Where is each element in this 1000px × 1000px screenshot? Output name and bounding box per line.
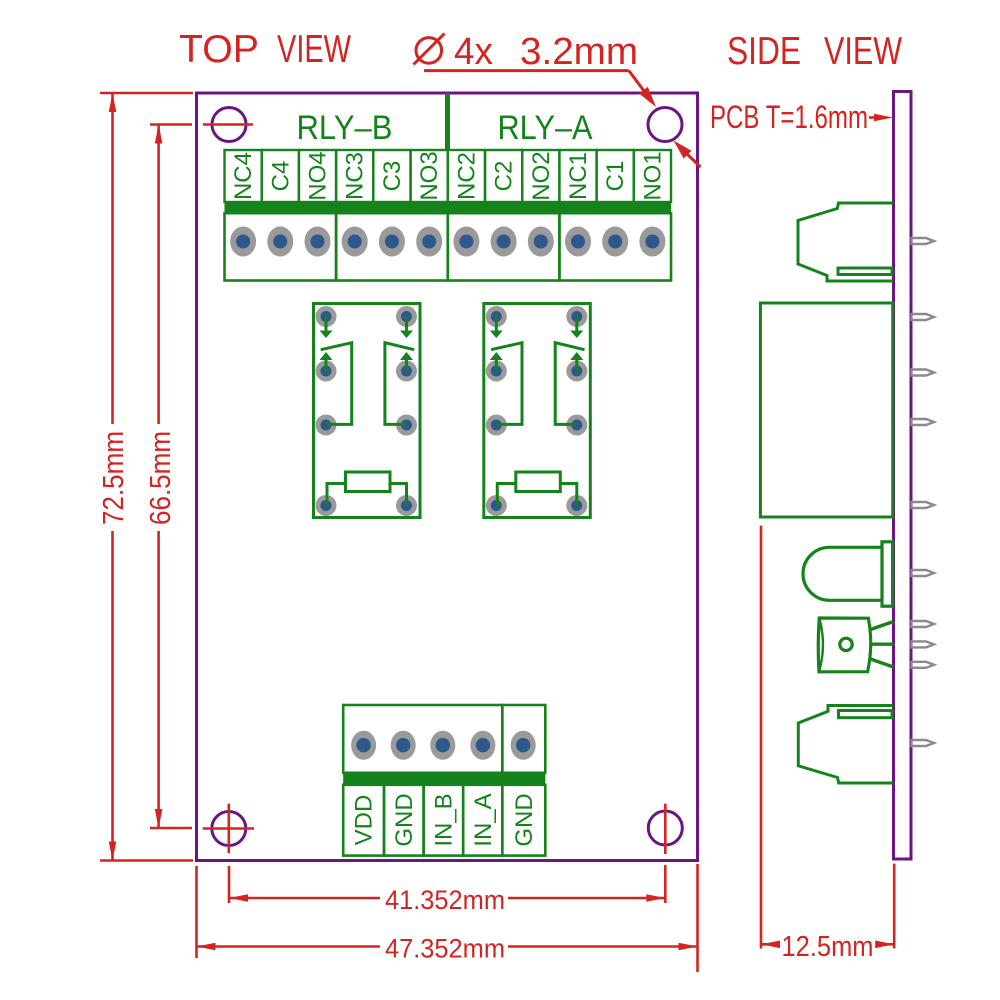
svg-text:4x: 4x (454, 31, 493, 73)
svg-text:C2: C2 (491, 161, 518, 192)
svg-text:SIDE: SIDE (727, 30, 801, 73)
svg-text:NO1: NO1 (639, 151, 666, 200)
svg-text:C1: C1 (602, 161, 629, 192)
svg-text:PCB T=1.6mm: PCB T=1.6mm (710, 99, 868, 135)
svg-text:GND: GND (391, 793, 418, 846)
svg-text:VDD: VDD (351, 795, 378, 846)
svg-text:NO2: NO2 (528, 151, 555, 200)
svg-text:3.2mm: 3.2mm (520, 31, 638, 73)
svg-text:C3: C3 (379, 161, 406, 192)
svg-text:IN_A: IN_A (470, 793, 497, 846)
svg-text:41.352mm: 41.352mm (385, 885, 505, 915)
svg-text:NO4: NO4 (305, 151, 332, 200)
svg-text:IN_B: IN_B (430, 793, 457, 846)
svg-text:NC1: NC1 (565, 152, 592, 200)
svg-text:VIEW: VIEW (277, 28, 351, 71)
svg-text:72.5mm: 72.5mm (98, 431, 130, 525)
svg-text:NO3: NO3 (416, 151, 443, 200)
svg-text:12.5mm: 12.5mm (782, 931, 874, 963)
svg-text:66.5mm: 66.5mm (145, 431, 177, 525)
svg-text:47.352mm: 47.352mm (385, 934, 505, 964)
svg-text:RLY–A: RLY–A (498, 109, 593, 147)
svg-text:NC2: NC2 (453, 152, 480, 200)
svg-text:GND: GND (511, 793, 538, 846)
svg-text:NC4: NC4 (230, 152, 257, 200)
svg-text:RLY–B: RLY–B (297, 109, 393, 147)
svg-text:TOP: TOP (179, 28, 259, 71)
svg-text:VIEW: VIEW (824, 30, 902, 73)
svg-text:NC3: NC3 (342, 152, 369, 200)
svg-text:C4: C4 (267, 161, 294, 192)
